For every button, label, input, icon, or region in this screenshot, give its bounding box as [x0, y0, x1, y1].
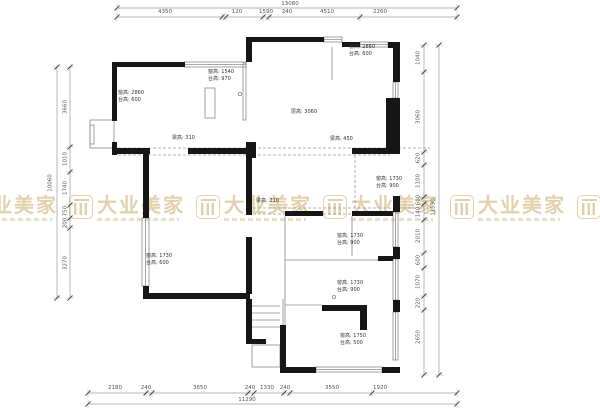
annotation-line: 梁高: 210 — [256, 198, 279, 205]
annotation-line: 梁高: 450 — [330, 136, 353, 143]
annotation-label: 层高: 3060 — [291, 109, 317, 116]
dim-label-bottom: 3650 — [193, 386, 207, 392]
dim-label-bottom: 240 — [141, 386, 152, 392]
dim-label-left: 1010 — [63, 152, 69, 166]
dim-label-right: 220 — [416, 298, 422, 309]
dim-label-top: 120 — [232, 10, 243, 16]
dim-label-right: 2010 — [416, 229, 422, 243]
dim-label-right: 1040 — [416, 51, 422, 65]
dim-label-bottom: 2180 — [108, 386, 122, 392]
dim-total-right: 11530 — [431, 198, 437, 216]
annotation-label: 窗高: 1730台高: 900 — [337, 233, 363, 247]
dim-label-top: 4510 — [320, 10, 334, 16]
annotation-line: 台高: 900 — [376, 183, 402, 190]
annotation-label: 梁高: 310 — [172, 135, 195, 142]
dim-label-top: 2260 — [373, 10, 387, 16]
annotation-line: 台高: 900 — [337, 287, 363, 294]
dim-label-right: 2650 — [416, 330, 422, 344]
annotation-line: 层高: 3060 — [291, 109, 317, 116]
floor-plan-drawing: 大业美家大业美家大业美家大业美家大业美家大业美家 — [0, 0, 600, 420]
annotation-line: 窗高: 1730 — [337, 233, 363, 240]
annotation-line: 台高: 900 — [337, 240, 363, 247]
dim-total-bottom: 11290 — [238, 398, 256, 404]
text-layer: 4350120159024045102260130802180240365024… — [0, 0, 600, 420]
dim-total-top: 13080 — [281, 2, 299, 8]
dim-label-right: 680 — [416, 195, 422, 206]
annotation-line: 窗高: 1730 — [337, 280, 363, 287]
annotation-label: 梁高: 210 — [256, 198, 279, 205]
annotation-line: 窗高: 1540 — [208, 69, 234, 76]
annotation-line: 窗高: 1730 — [146, 253, 172, 260]
dim-label-left: 3660 — [63, 100, 69, 114]
annotation-line: 台高: 500 — [340, 340, 366, 347]
dim-label-bottom: 240 — [280, 386, 291, 392]
annotation-label: 窗高: 1730台高: 900 — [376, 176, 402, 190]
annotation-label: 窗高: 1730台高: 600 — [146, 253, 172, 267]
dim-label-right: 620 — [416, 153, 422, 164]
dim-label-left: 3270 — [63, 256, 69, 270]
annotation-line: 窗高: 2860 — [349, 44, 375, 51]
annotation-line: 梁高: 310 — [172, 135, 195, 142]
dim-total-left: 10060 — [48, 174, 54, 192]
dim-label-right: 1070 — [416, 275, 422, 289]
dim-label-right: 1100 — [416, 174, 422, 188]
annotation-label: 窗高: 2860台高: 600 — [118, 90, 144, 104]
dim-label-left: 750 — [63, 206, 69, 217]
annotation-label: 梁高: 450 — [330, 136, 353, 143]
dim-label-right: 600 — [416, 255, 422, 266]
annotation-label: 窗高: 1750台高: 500 — [340, 333, 366, 347]
annotation-line: 台高: 600 — [118, 97, 144, 104]
annotation-line: 台高: 600 — [146, 260, 172, 267]
dim-label-bottom: 1920 — [373, 386, 387, 392]
dim-label-right: 140 — [416, 207, 422, 218]
dim-label-left: 1740 — [63, 181, 69, 195]
annotation-label: 窗高: 2860台高: 600 — [349, 44, 375, 58]
dim-label-top: 1590 — [259, 10, 273, 16]
dim-label-top: 240 — [282, 10, 293, 16]
annotation-line: 窗高: 1750 — [340, 333, 366, 340]
dim-label-bottom: 3550 — [325, 386, 339, 392]
annotation-line: 台高: 970 — [208, 76, 234, 83]
dim-label-left: 200 — [63, 218, 69, 229]
dim-label-right: 3060 — [416, 110, 422, 124]
dim-label-bottom: 240 — [245, 386, 256, 392]
dim-label-bottom: 1330 — [260, 386, 274, 392]
annotation-label: 窗高: 1730台高: 900 — [337, 280, 363, 294]
annotation-line: 窗高: 2860 — [118, 90, 144, 97]
annotation-line: 窗高: 1730 — [376, 176, 402, 183]
annotation-line: 台高: 600 — [349, 51, 375, 58]
annotation-label: 窗高: 1540台高: 970 — [208, 69, 234, 83]
dim-label-top: 4350 — [158, 10, 172, 16]
